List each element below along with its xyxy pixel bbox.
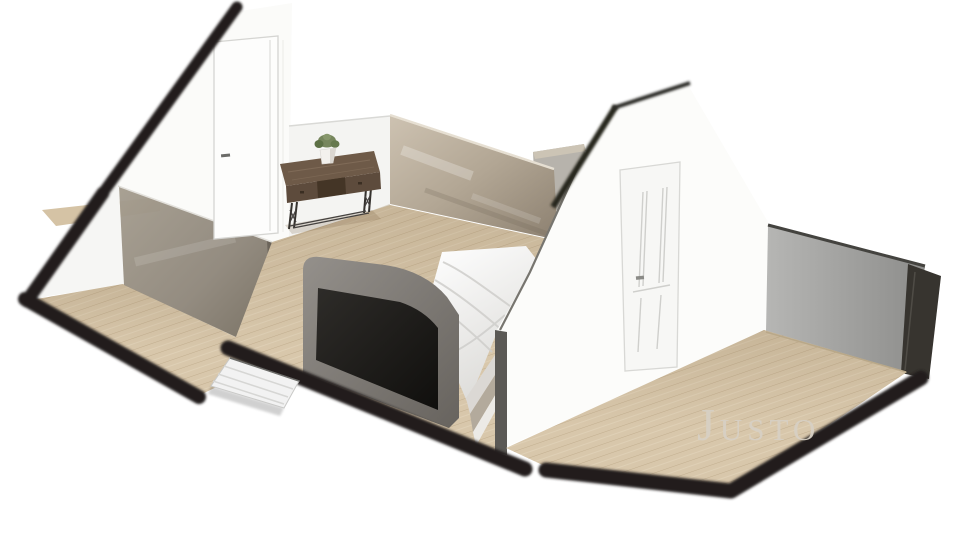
floorplan-svg: JUSTO: [0, 0, 958, 539]
left-door: [214, 36, 278, 239]
wall-cut-edge: [495, 330, 507, 455]
middle-door: [620, 162, 680, 371]
floorplan-render: JUSTO: [0, 0, 958, 539]
